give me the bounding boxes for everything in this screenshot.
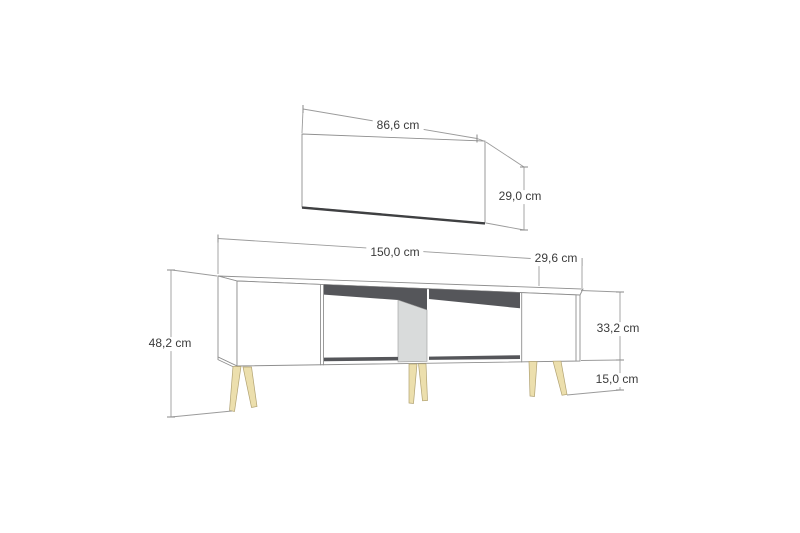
stand-leg-height-label: 15,0 cm [592, 373, 643, 387]
leg-right-front [529, 362, 537, 397]
diagram-svg [0, 0, 800, 533]
stand-depth-label: 29,6 cm [531, 252, 582, 266]
stand-left-side-panel [218, 276, 237, 366]
diagram-canvas: 86,6 cm 29,0 cm 150,0 cm 29,6 cm 48,2 cm… [0, 0, 800, 533]
leg-center-back [419, 364, 428, 401]
stand-width-label: 150,0 cm [366, 246, 423, 260]
stand-body-height-label: 33,2 cm [593, 322, 644, 336]
panel-width-label: 86,6 cm [373, 119, 424, 133]
wall-panel-drawing [302, 134, 485, 223]
leg-left-back [243, 367, 257, 408]
stand-total-height-label: 48,2 cm [145, 337, 196, 351]
stand-legs [230, 361, 568, 411]
panel-height-dimension-line [486, 142, 528, 230]
center-divider [398, 300, 427, 362]
leg-center-front [409, 364, 417, 404]
leg-left-front [230, 367, 242, 412]
panel-height-label: 29,0 cm [495, 190, 546, 204]
tv-stand-drawing [218, 276, 583, 412]
leg-right-back [553, 361, 567, 395]
